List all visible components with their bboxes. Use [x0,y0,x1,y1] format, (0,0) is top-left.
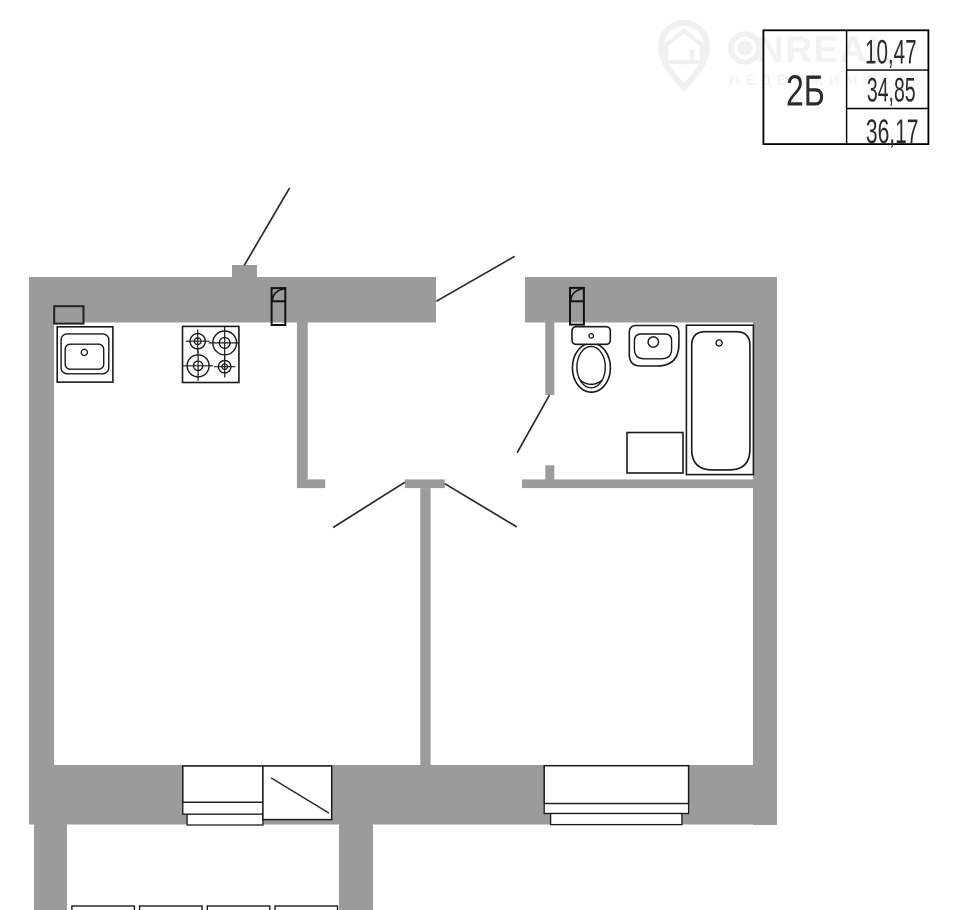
svg-text:36,17: 36,17 [866,113,919,151]
svg-text:34,85: 34,85 [867,72,916,110]
svg-text:10,47: 10,47 [865,34,917,72]
svg-text:2Б: 2Б [786,66,825,115]
